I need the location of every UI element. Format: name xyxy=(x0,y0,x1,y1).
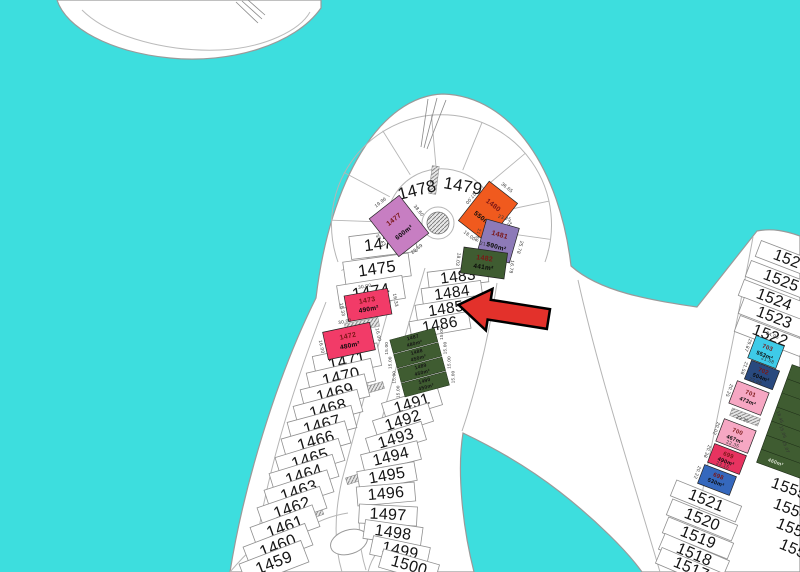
dimension-label: 15.00 xyxy=(384,342,389,355)
plot-number: 1496 xyxy=(367,484,405,504)
plot-map: 1476147514741471147014691468146714661465… xyxy=(0,0,800,572)
dimension-label: 15.00 xyxy=(395,385,400,398)
roundabout-icon xyxy=(427,212,449,234)
dimension-label: 15.00 xyxy=(443,341,448,354)
dimension-label: 15.00 xyxy=(447,356,452,369)
dimension-label: 15.00 xyxy=(450,370,455,383)
map-canvas: 1476147514741471147014691468146714661465… xyxy=(0,0,800,572)
dimension-label: 15.00 xyxy=(439,327,444,340)
dimension-label: 15.00 xyxy=(388,356,393,369)
dimension-label: 15.00 xyxy=(392,371,397,384)
